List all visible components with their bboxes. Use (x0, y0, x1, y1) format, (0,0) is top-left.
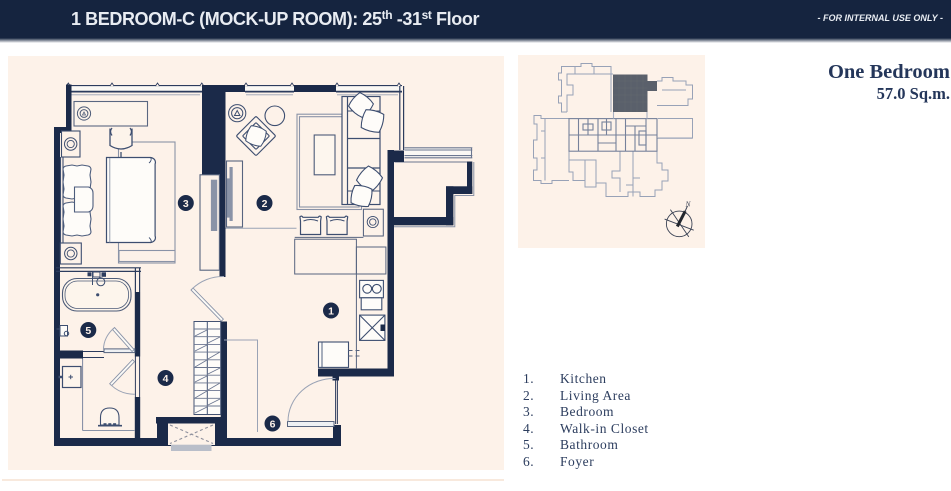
svg-text:4: 4 (163, 373, 169, 385)
svg-text:5: 5 (85, 325, 91, 337)
svg-text:3: 3 (183, 198, 189, 210)
svg-text:2: 2 (262, 198, 268, 210)
svg-text:N: N (685, 200, 692, 209)
svg-text:6: 6 (270, 418, 276, 430)
svg-text:1: 1 (328, 305, 334, 317)
